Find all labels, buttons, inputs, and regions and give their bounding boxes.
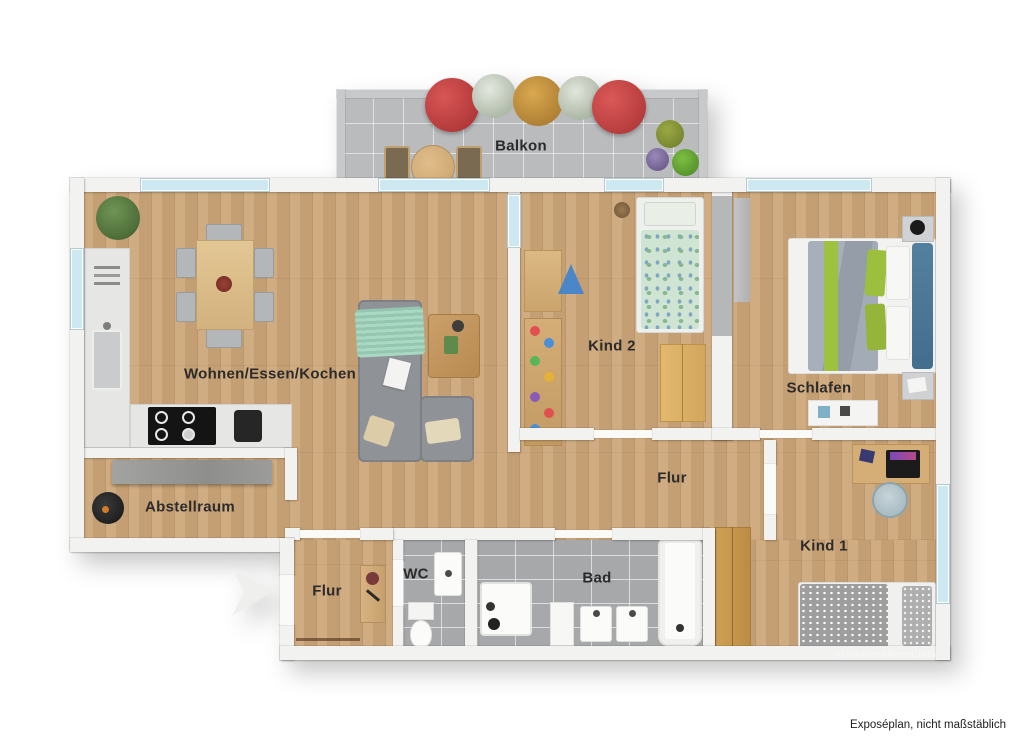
plant [96, 196, 140, 240]
kids-bed-duvet [641, 230, 699, 329]
room-label-schlafen: Schlafen [787, 380, 852, 397]
room-label-kind2: Kind 2 [588, 338, 636, 355]
window [938, 486, 948, 602]
dining-chair [206, 328, 242, 348]
wall [337, 90, 345, 184]
room-label-wc: WC [403, 566, 429, 583]
wall [393, 528, 555, 540]
faucet [629, 610, 636, 617]
hall-decor [366, 572, 379, 585]
room-label-abstellraum: Abstellraum [145, 499, 235, 516]
pillow-blue [912, 243, 933, 369]
kitchen-utensils [94, 274, 120, 277]
storage-shelf [112, 460, 272, 484]
bathtub-faucet [676, 624, 684, 632]
door-threshold [594, 430, 652, 438]
room-label-balkon: Balkon [495, 138, 547, 155]
faucet [593, 610, 600, 617]
kids-bed-pillow [644, 202, 696, 226]
cushion [425, 418, 462, 445]
toy [544, 338, 554, 348]
dresser-decor [840, 406, 850, 416]
door-threshold [764, 464, 776, 514]
watermark: Illustration©ImmoGrafix [815, 649, 937, 659]
wall [703, 528, 715, 652]
window [142, 180, 268, 190]
wall [84, 448, 292, 458]
wardrobe-door-line [682, 344, 683, 422]
kids-desk [524, 250, 562, 312]
window [606, 180, 662, 190]
entrance-door [280, 575, 294, 625]
sofa-throw-blanket [355, 306, 425, 357]
room-label-flur-mitte: Flur [657, 470, 687, 487]
desk-item [859, 449, 875, 464]
wall [712, 428, 760, 440]
single-bed-pillow [902, 586, 932, 646]
vacuum-detail [102, 506, 109, 513]
table-decor [444, 336, 458, 354]
toy [530, 392, 540, 402]
wall [70, 538, 293, 552]
wall [393, 540, 403, 560]
potted-plant [646, 148, 669, 171]
flower-bush [592, 80, 646, 134]
burner [155, 411, 168, 424]
wall [764, 514, 776, 540]
floorplan: Balkon Wohnen/Essen/Kochen Kind 2 Schlaf… [0, 0, 1024, 750]
pan [234, 410, 262, 442]
flower-bush [425, 78, 479, 132]
door-threshold [300, 530, 360, 538]
window [748, 180, 870, 190]
shower-fixture [486, 602, 495, 611]
dining-chair [254, 248, 274, 278]
table-decor [452, 320, 464, 332]
faucet [445, 570, 452, 577]
entrance-arrow-icon [232, 568, 272, 616]
wardrobe-door-line [732, 527, 733, 649]
toilet-tank [408, 602, 434, 620]
wall [812, 428, 940, 440]
potted-plant [656, 120, 684, 148]
flower-bush [513, 76, 563, 126]
dining-chair [254, 292, 274, 322]
burner [182, 411, 195, 424]
kitchen-utensils [94, 282, 120, 285]
room-label-flur-eingang: Flur [312, 583, 342, 600]
single-bed-duvet [800, 584, 888, 648]
wall [70, 178, 84, 550]
window [509, 196, 519, 246]
pillow-green [865, 304, 887, 351]
wall [764, 440, 776, 464]
wardrobe [660, 344, 706, 422]
door-threshold [393, 560, 403, 606]
shower-drain [488, 618, 500, 630]
nightstand-decor [910, 220, 925, 235]
dining-chair [176, 292, 196, 322]
burner [155, 428, 168, 441]
dining-chair [176, 248, 196, 278]
wall [612, 528, 709, 540]
wall [465, 540, 477, 652]
wall-decor [614, 202, 630, 218]
burner [182, 428, 195, 441]
wall [280, 538, 294, 575]
building: Balkon Wohnen/Essen/Kochen Kind 2 Schlaf… [0, 0, 1024, 750]
nightstand-papers [907, 377, 927, 393]
toilet-bowl [410, 620, 432, 648]
desk-chair [872, 482, 908, 518]
wall [285, 448, 297, 500]
toy [544, 372, 554, 382]
wardrobe [734, 198, 750, 302]
dresser-decor [818, 406, 830, 418]
pillow-green [864, 249, 887, 296]
potted-plant [672, 149, 699, 176]
pillow-white [886, 306, 910, 360]
window [72, 250, 82, 328]
duct-shaft [712, 196, 732, 336]
door-threshold [760, 430, 812, 438]
faucet [103, 322, 111, 330]
table-centerpiece [216, 276, 232, 292]
room-label-wohnen: Wohnen/Essen/Kochen [184, 366, 356, 383]
balcony-sliding-door [380, 180, 488, 190]
flower-bush [472, 74, 516, 118]
kitchen-utensils [94, 266, 120, 269]
toy [544, 408, 554, 418]
toy [530, 356, 540, 366]
wall [360, 528, 393, 540]
bath-cabinet [550, 602, 574, 646]
hall-wardrobe [715, 527, 751, 649]
room-label-bad: Bad [582, 570, 611, 587]
footer-note: Exposéplan, nicht maßstäblich [850, 719, 1006, 731]
room-label-kind1: Kind 1 [800, 538, 848, 555]
door-mat-shadow [296, 638, 360, 641]
wall [652, 428, 712, 440]
laptop-screen [890, 452, 916, 460]
pillow-white [886, 246, 910, 300]
toy [530, 326, 540, 336]
door-threshold [555, 530, 612, 538]
double-bed-green-runner [824, 241, 838, 371]
wall [699, 90, 707, 184]
kitchen-sink [92, 330, 122, 390]
wall [520, 428, 594, 440]
